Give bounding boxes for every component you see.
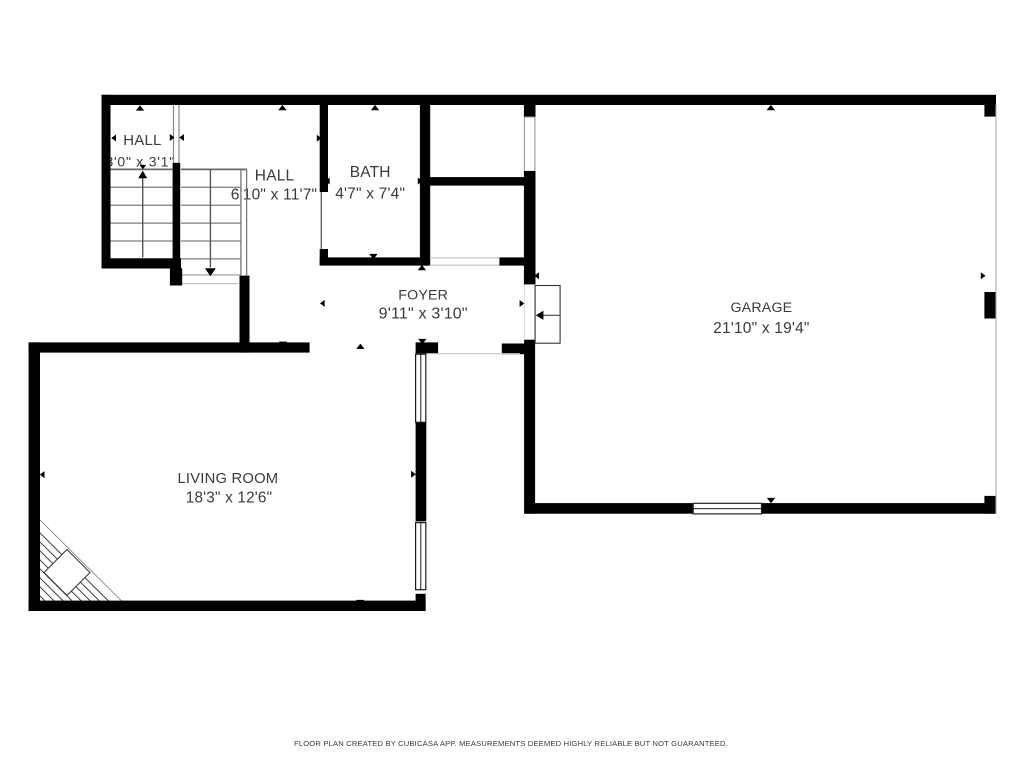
svg-text:9'11" x 3'10": 9'11" x 3'10" [379, 306, 468, 323]
svg-text:GARAGE: GARAGE [730, 300, 792, 316]
svg-text:18'3" x 12'6": 18'3" x 12'6" [186, 490, 273, 507]
svg-text:HALL: HALL [123, 132, 161, 149]
svg-text:FLOOR PLAN CREATED BY CUBICASA: FLOOR PLAN CREATED BY CUBICASA APP. MEAS… [294, 739, 728, 748]
svg-text:3'0" x 3'1": 3'0" x 3'1" [105, 153, 174, 169]
svg-text:HALL: HALL [255, 168, 295, 185]
svg-text:BATH: BATH [350, 164, 391, 181]
svg-text:21'10" x 19'4": 21'10" x 19'4" [713, 320, 809, 337]
svg-text:4'7" x 7'4": 4'7" x 7'4" [335, 186, 405, 203]
svg-text:FOYER: FOYER [398, 288, 448, 304]
svg-text:6'10" x 11'7": 6'10" x 11'7" [231, 187, 317, 204]
svg-text:LIVING ROOM: LIVING ROOM [177, 471, 278, 487]
